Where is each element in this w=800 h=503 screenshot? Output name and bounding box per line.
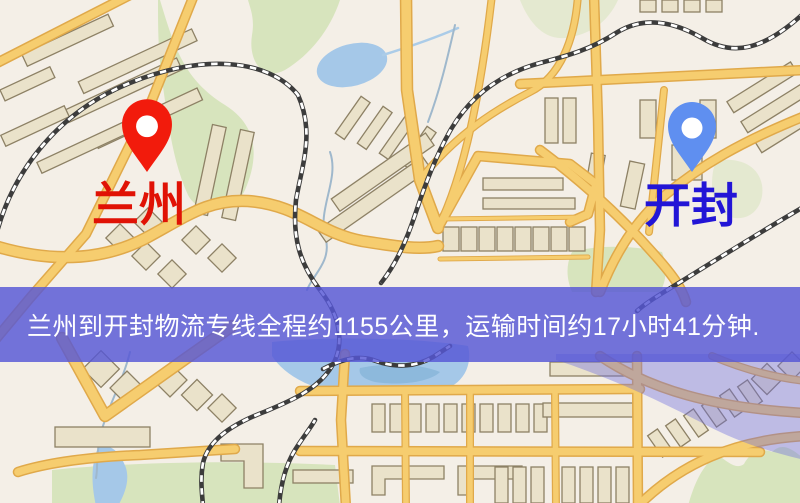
map-canvas[interactable]: 兰州 开封 <box>0 0 800 503</box>
destination-label: 开封 <box>644 179 738 232</box>
route-info-text: 兰州到开封物流专线全程约1155公里，运输时间约17小时41分钟. <box>27 307 760 343</box>
origin-label: 兰州 <box>92 178 186 231</box>
map-view: 兰州 开封 兰州到开封物流专线全程约1155公里，运输时间约17小时41分钟. <box>0 0 800 503</box>
route-info-banner: 兰州到开封物流专线全程约1155公里，运输时间约17小时41分钟. <box>0 287 800 362</box>
